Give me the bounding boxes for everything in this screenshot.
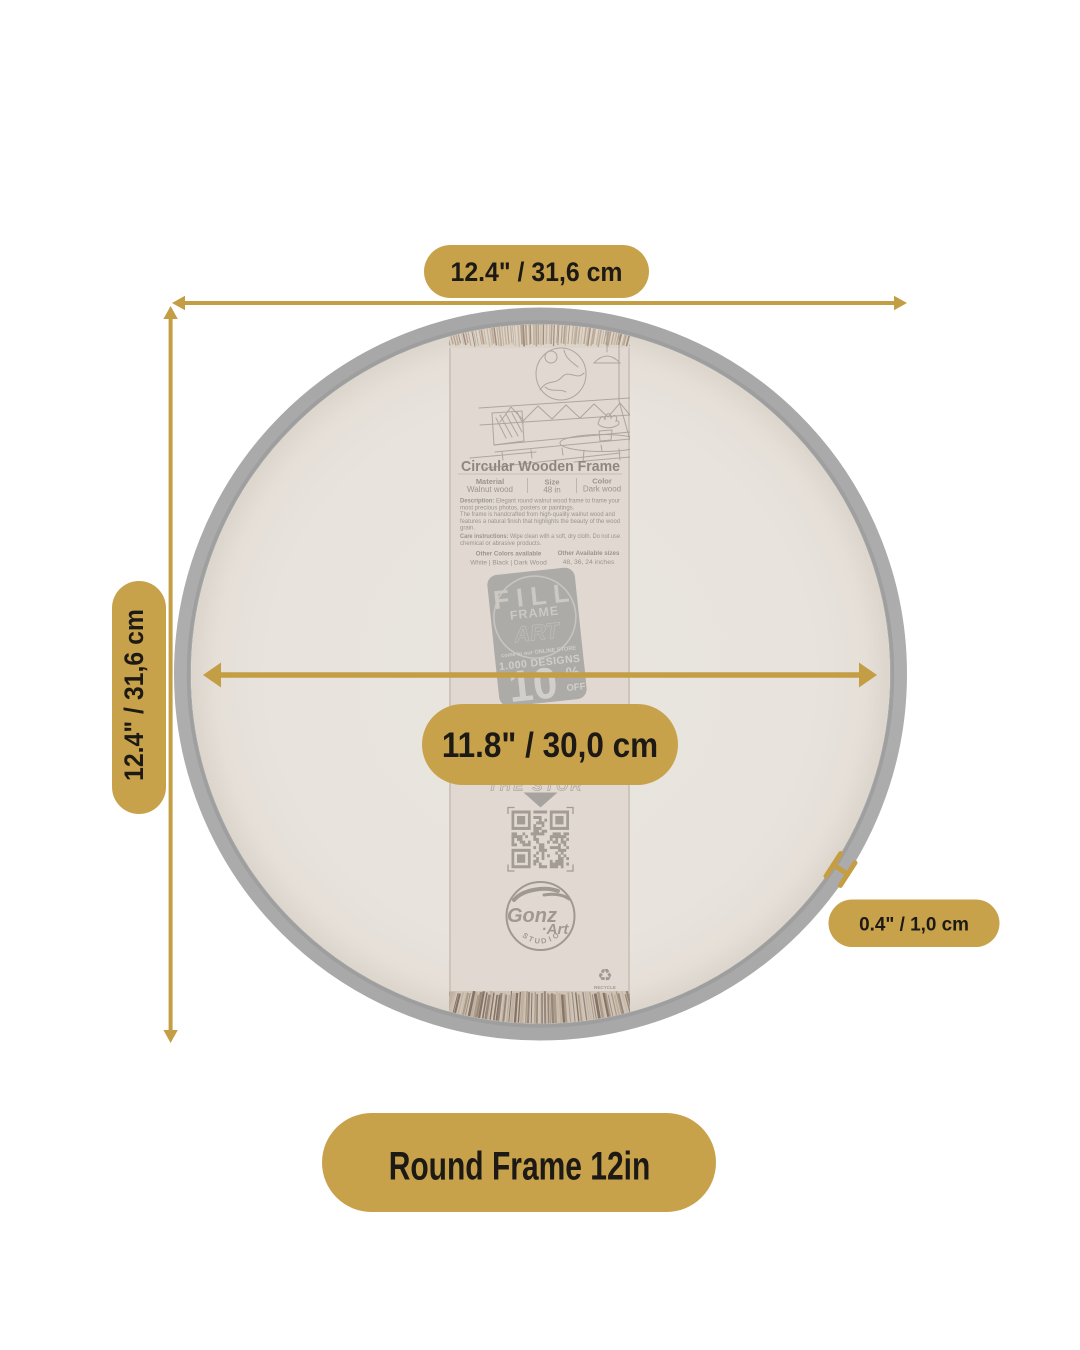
svg-text:12.4" / 31,6 cm: 12.4" / 31,6 cm [451,258,623,287]
svg-text:Circular Wooden Frame: Circular Wooden Frame [461,458,620,475]
svg-text:grain.: grain. [460,526,475,532]
svg-text:U: U [534,936,541,946]
svg-text:Walnut wood: Walnut wood [467,485,513,494]
svg-text:0.4" / 1,0 cm: 0.4" / 1,0 cm [859,914,969,935]
svg-text:OFF: OFF [566,681,586,694]
svg-text:11.8" / 30,0 cm: 11.8" / 30,0 cm [442,727,658,766]
svg-text:Round Frame 12in: Round Frame 12in [389,1144,651,1188]
svg-text:48 in: 48 in [543,486,560,495]
svg-text:Description: Elegant round wal: Description: Elegant round walnut wood f… [460,499,620,505]
svg-text:Other Colors available: Other Colors available [476,551,542,558]
svg-text:most precious photos, posters: most precious photos, posters or paintin… [460,505,575,511]
svg-text:White | Black | Dark Wood: White | Black | Dark Wood [470,560,547,567]
svg-text:♻: ♻ [597,966,612,985]
svg-text:features a natural finish that: features a natural finish that highlight… [460,519,620,525]
svg-text:Dark wood: Dark wood [583,485,621,494]
svg-text:12.4" / 31,6 cm: 12.4" / 31,6 cm [120,609,149,781]
svg-text:Other Available sizes: Other Available sizes [558,550,620,557]
svg-text:RECYCLE: RECYCLE [594,985,616,990]
svg-text:The frame is handcrafted from: The frame is handcrafted from high-quali… [460,512,615,518]
svg-text:48, 36, 24 inches: 48, 36, 24 inches [563,559,615,566]
svg-text:chemical or abrasive products.: chemical or abrasive products. [460,541,542,547]
svg-text:ART: ART [512,618,562,648]
svg-text:Care instructions: Wipe clean: Care instructions: Wipe clean with a sof… [460,534,621,540]
